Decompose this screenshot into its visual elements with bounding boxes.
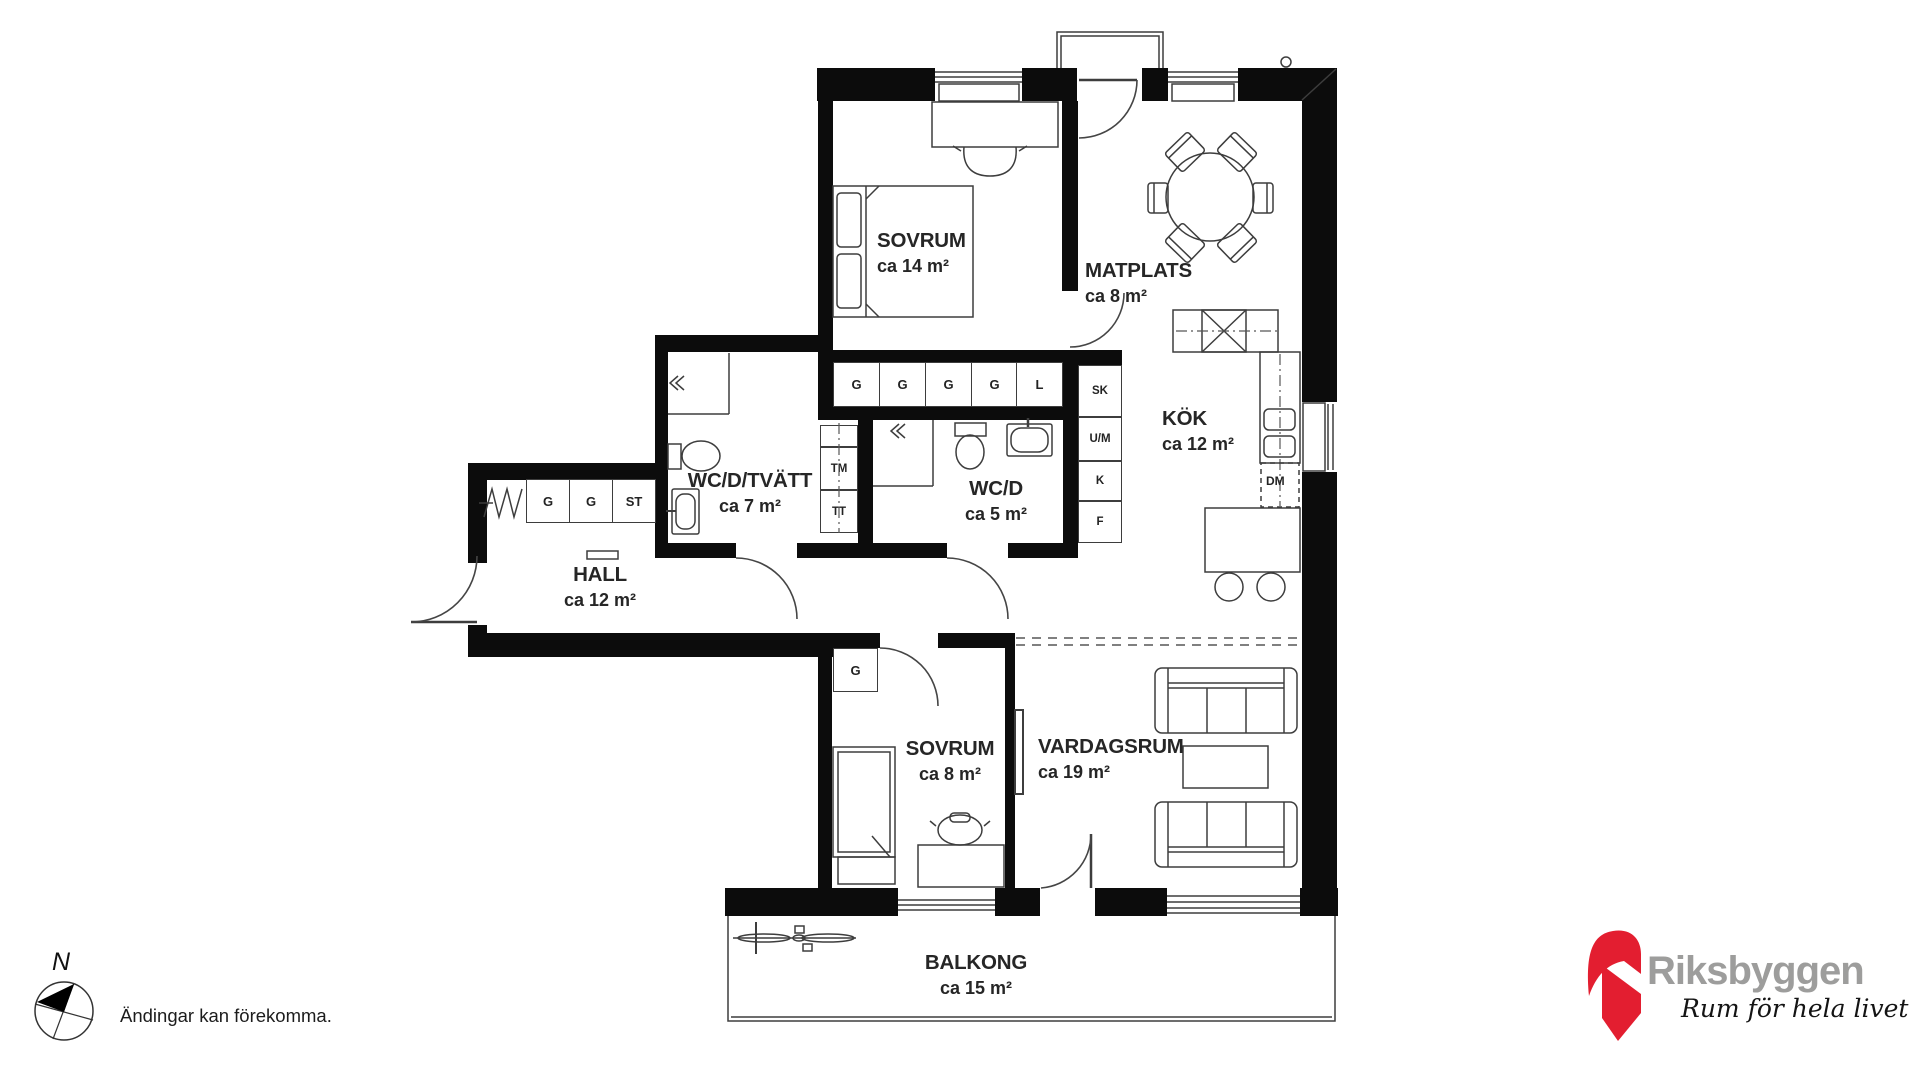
room-label-kok: KÖK ca 12 m² [1162,406,1234,456]
window-glazing [898,69,1336,913]
room-name: BALKONG [925,950,1027,977]
desk-chair [930,813,990,845]
room-name: HALL [564,562,636,589]
dining-chair [1253,183,1273,213]
dining-chair [1216,132,1257,173]
sofa [1155,802,1297,867]
room-name: WC/D/TVÄTT [688,468,812,495]
room-name: KÖK [1162,406,1234,433]
compass-icon [35,982,93,1040]
room-area: ca 19 m² [1038,761,1184,784]
bicycle [733,922,856,954]
room-area: ca 14 m² [877,255,966,278]
compass-north-label: N [52,948,70,977]
desk-chair [953,146,1027,176]
french-balcony-railing [1057,32,1291,68]
room-label-hall: HALL ca 12 m² [564,562,636,612]
balcony-railing [728,916,1335,1021]
room-area: ca 12 m² [1162,433,1234,456]
logo-brand-text: Riksbyggen [1647,949,1864,994]
radiator [587,551,618,559]
coffee-table [1183,746,1268,788]
shower [668,353,729,414]
room-label-vardagsrum: VARDAGSRUM ca 19 m² [1038,734,1184,784]
single-bed [833,747,895,884]
room-name: SOVRUM [906,736,995,763]
riksbyggen-logo-icon [1588,931,1641,1041]
sliding-door-leaf [1015,710,1023,794]
disclaimer-text: Ändingar kan förekomma. [120,1005,332,1027]
sink [1007,418,1052,456]
room-label-balkong: BALKONG ca 15 m² [925,950,1027,1000]
toilet [955,423,986,469]
room-label-wcd: WC/D ca 5 m² [965,476,1027,526]
dining-table [1166,153,1254,241]
room-name: WC/D [965,476,1027,503]
room-label-matplats: MATPLATS ca 8 m² [1085,258,1192,308]
room-label-sovrum-2: SOVRUM ca 8 m² [906,736,995,786]
desk [932,102,1058,147]
coat-rack [479,489,522,517]
room-area: ca 7 m² [688,495,812,518]
room-area: ca 8 m² [906,763,995,786]
dining-chair [1148,183,1168,213]
room-area: ca 8 m² [1085,285,1192,308]
desk [918,845,1004,887]
floorplan-linework [0,0,1920,1080]
room-label-sovrum-1: SOVRUM ca 14 m² [877,228,966,278]
room-name: MATPLATS [1085,258,1192,285]
shower [873,420,933,486]
room-area: ca 12 m² [564,589,636,612]
kitchen-island [1205,508,1300,601]
room-name: SOVRUM [877,228,966,255]
room-label-wcd-tvatt: WC/D/TVÄTT ca 7 m² [688,468,812,518]
dining-chair [1216,223,1257,264]
open-plan-dashed-line [1016,638,1300,645]
floorplan-page: G G G G L SK U/M K F TM TT G G ST G [0,0,1920,1080]
room-area: ca 5 m² [965,503,1027,526]
logo-tagline-text: Rum för hela livet [1681,994,1908,1023]
sofa [1155,668,1297,733]
dishwasher-label: DM [1266,474,1285,488]
room-name: VARDAGSRUM [1038,734,1184,761]
toilet [668,441,720,471]
dining-chair [1164,132,1205,173]
room-area: ca 15 m² [925,977,1027,1000]
